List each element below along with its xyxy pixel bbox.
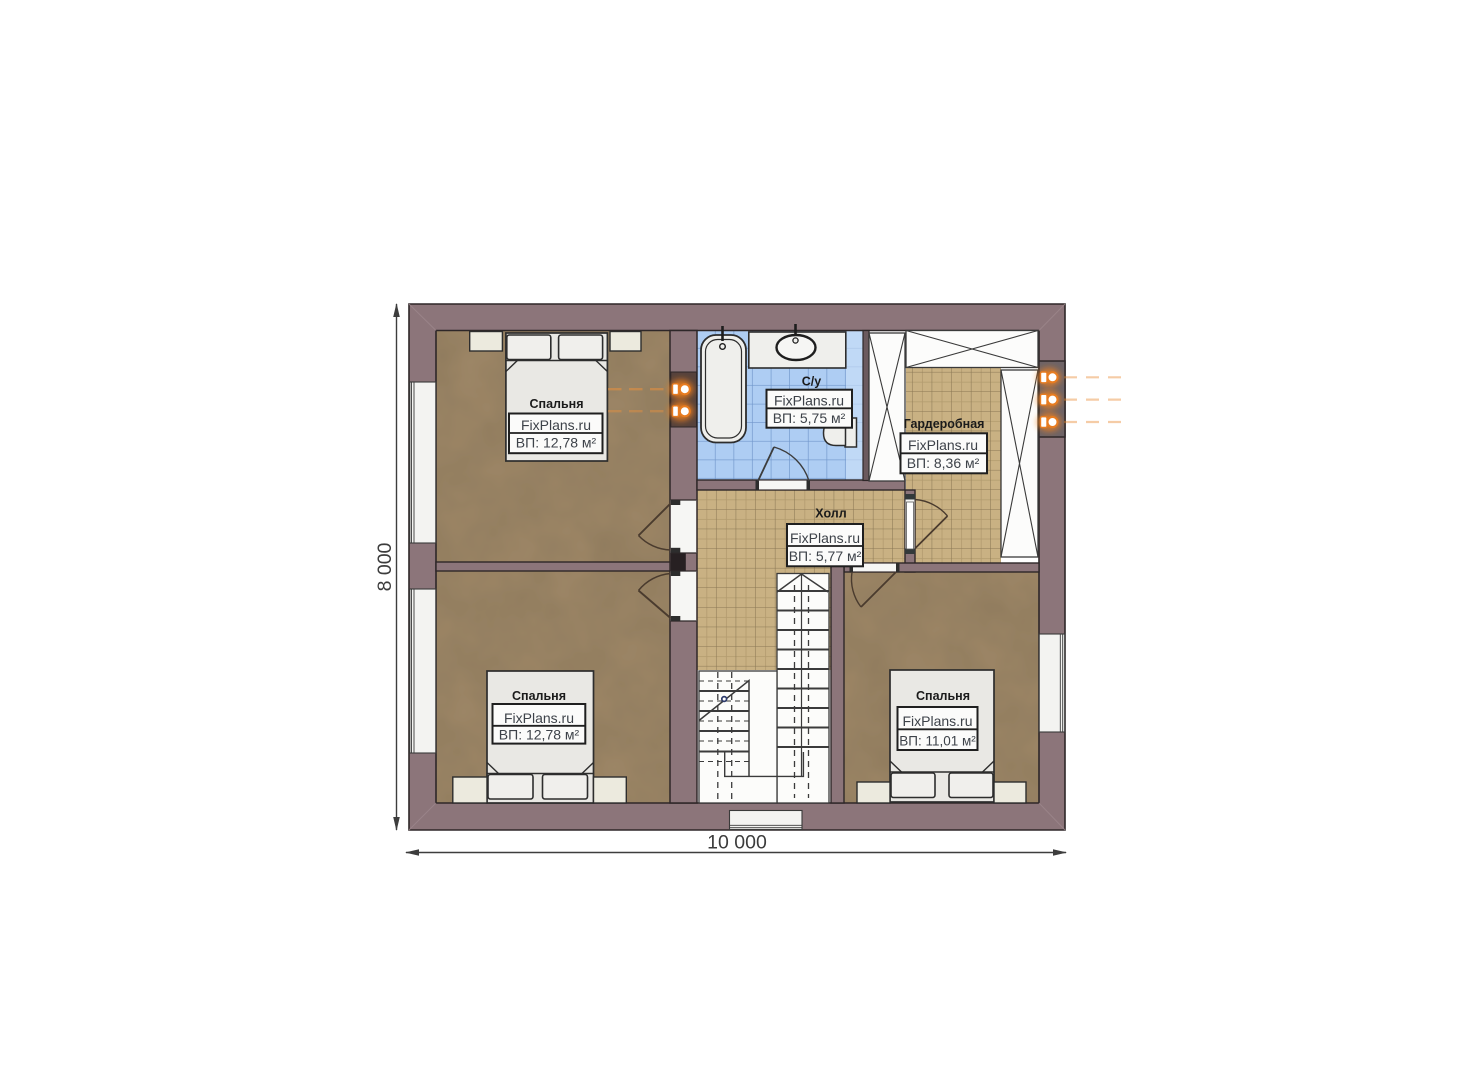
svg-text:8 000: 8 000: [374, 542, 396, 591]
svg-text:Гардеробная: Гардеробная: [904, 417, 985, 431]
svg-text:FixPlans.ru: FixPlans.ru: [521, 417, 591, 433]
svg-text:FixPlans.ru: FixPlans.ru: [790, 530, 860, 546]
svg-text:10 000: 10 000: [707, 832, 767, 854]
svg-text:ВП: 12,78 м²: ВП: 12,78 м²: [499, 727, 580, 743]
svg-text:ВП: 12,78 м²: ВП: 12,78 м²: [516, 435, 597, 451]
svg-text:ВП: 5,75 м²: ВП: 5,75 м²: [773, 410, 846, 426]
svg-text:Спальня: Спальня: [530, 397, 584, 411]
svg-text:FixPlans.ru: FixPlans.ru: [908, 437, 978, 453]
svg-text:С/у: С/у: [802, 375, 822, 389]
svg-text:ВП: 5,77 м²: ВП: 5,77 м²: [789, 548, 862, 564]
svg-text:ВП: 11,01 м²: ВП: 11,01 м²: [899, 734, 976, 749]
svg-text:FixPlans.ru: FixPlans.ru: [504, 710, 574, 726]
svg-text:Спальня: Спальня: [512, 689, 566, 703]
svg-text:Холл: Холл: [815, 507, 846, 521]
svg-text:Спальня: Спальня: [916, 689, 970, 703]
svg-text:FixPlans.ru: FixPlans.ru: [774, 392, 844, 408]
svg-text:FixPlans.ru: FixPlans.ru: [902, 713, 972, 729]
svg-text:ВП: 8,36 м²: ВП: 8,36 м²: [907, 455, 980, 471]
